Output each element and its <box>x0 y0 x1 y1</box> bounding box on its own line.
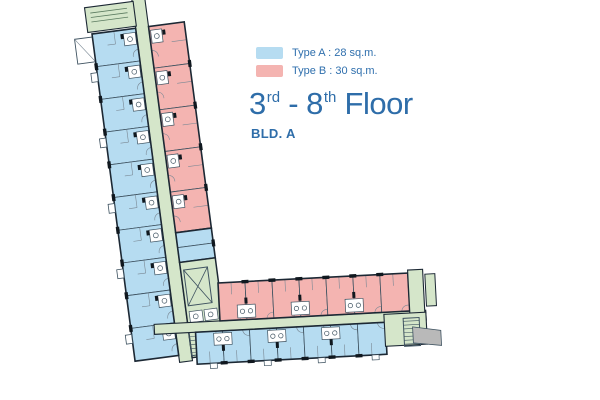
unit-type-b <box>149 22 190 68</box>
balcony-bump <box>372 355 379 360</box>
wc-room <box>189 310 203 323</box>
type-b-color-swatch <box>256 65 283 77</box>
bath-pod <box>153 261 166 274</box>
bath-pod <box>156 71 169 85</box>
legend-item-type-b: Type B : 30 sq.m. <box>256 65 378 77</box>
balcony-bump <box>108 204 115 214</box>
unit-type-b <box>165 147 206 192</box>
unit-type-b <box>159 105 200 151</box>
legend-label-type-b: Type B : 30 sq.m. <box>292 65 378 77</box>
wall-mark <box>276 342 279 348</box>
bath-pod <box>167 154 180 168</box>
bath-pod <box>151 29 164 43</box>
title-tail: Floor <box>336 86 412 121</box>
bath-pod <box>149 229 162 242</box>
building-label: BLD. A <box>251 126 296 141</box>
wall-mark <box>298 295 301 301</box>
balcony-bump <box>91 73 98 83</box>
balcony-bump <box>125 334 132 344</box>
page-title: 3rd - 8th Floor <box>249 88 413 119</box>
wall-tick <box>295 277 302 281</box>
wall-tick <box>268 278 275 282</box>
wall-tick <box>355 354 362 358</box>
floor-plan-page: Type A : 28 sq.m. Type B : 30 sq.m. 3rd … <box>0 0 600 400</box>
wall-mark <box>244 297 247 303</box>
balcony-bump <box>117 269 124 279</box>
title-from-suffix: rd <box>267 89 280 106</box>
balcony-bump <box>264 360 271 365</box>
wall-tick <box>248 359 255 363</box>
wall-tick <box>376 273 383 277</box>
title-from-number: 3 <box>249 86 266 121</box>
wall-tick <box>241 280 248 284</box>
bath-pod <box>145 196 158 209</box>
bath-pod <box>136 131 149 144</box>
balcony-bump <box>99 138 106 148</box>
balcony-bump <box>318 357 325 362</box>
type-a-color-swatch <box>256 47 283 59</box>
bath-pod <box>140 163 153 176</box>
legend-label-type-a: Type A : 28 sq.m. <box>292 47 376 59</box>
wall-tick <box>221 361 228 365</box>
title-to-suffix: th <box>324 89 337 106</box>
wall-tick <box>349 274 356 278</box>
unit-type-b <box>170 187 211 232</box>
legend: Type A : 28 sq.m. Type B : 30 sq.m. <box>256 47 378 77</box>
vertical-wing <box>70 0 230 370</box>
bath-pod <box>123 32 136 45</box>
bath-pod <box>128 65 141 78</box>
bath-pod <box>172 194 185 208</box>
wall-mark <box>352 292 355 298</box>
bath-pod <box>158 294 171 307</box>
wall-mark <box>330 339 333 345</box>
balcony-bump <box>210 363 217 368</box>
unit-type-a <box>357 322 387 355</box>
bath-pod <box>161 112 174 126</box>
bath-pod <box>132 98 145 111</box>
wall-tick <box>328 355 335 359</box>
unit-type-b <box>154 64 195 110</box>
wall-mark <box>222 345 225 351</box>
wall-tick <box>275 358 282 362</box>
end-cap-green <box>408 269 425 315</box>
title-middle: - 8 <box>280 86 323 121</box>
end-sliver-green <box>425 274 437 306</box>
wc-room <box>204 308 218 321</box>
legend-item-type-a: Type A : 28 sq.m. <box>256 47 378 59</box>
wall-tick <box>322 275 329 279</box>
unit-type-b <box>380 273 410 312</box>
wall-tick <box>301 357 308 361</box>
